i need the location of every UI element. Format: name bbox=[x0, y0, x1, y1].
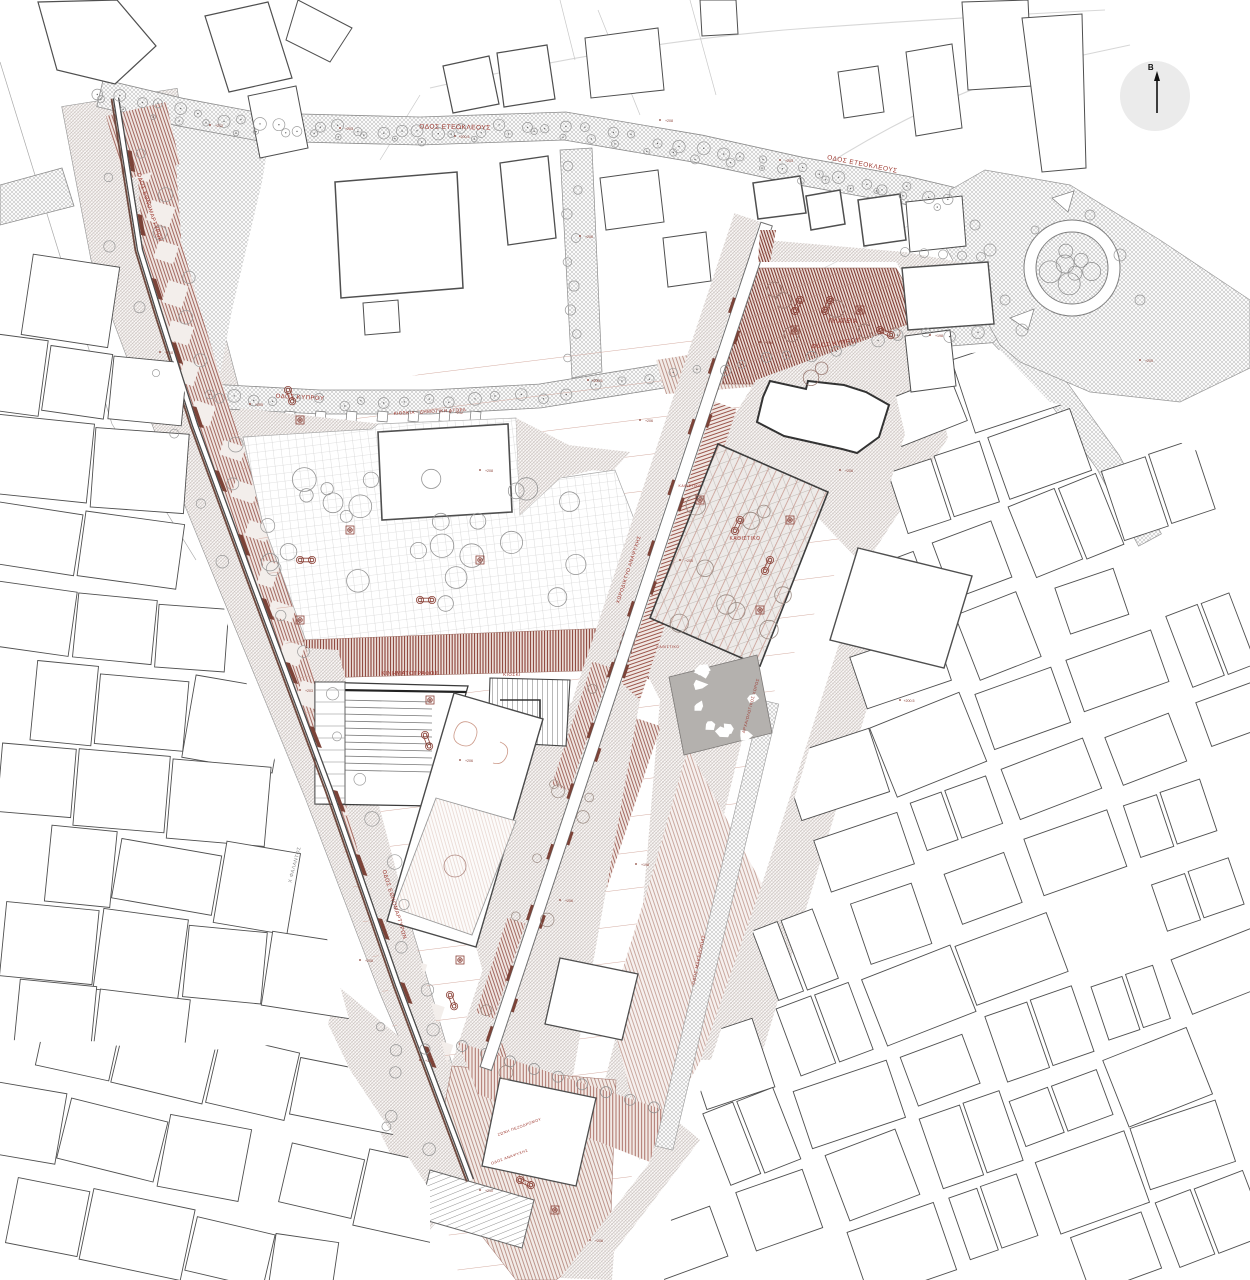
svg-text:+212: +212 bbox=[215, 124, 223, 128]
svg-text:+198: +198 bbox=[425, 1059, 433, 1063]
svg-text:+208: +208 bbox=[765, 341, 773, 345]
svg-text:+203: +203 bbox=[305, 689, 313, 693]
svg-text:B: B bbox=[1148, 63, 1154, 72]
svg-text:+200.5: +200.5 bbox=[903, 699, 914, 703]
svg-text:ΟΔΟΣ ΕΤΕΟΚΛΕΟΥΣ: ΟΔΟΣ ΕΤΕΟΚΛΕΟΥΣ bbox=[419, 123, 491, 131]
svg-text:+210: +210 bbox=[165, 351, 173, 355]
svg-text:+206: +206 bbox=[465, 759, 473, 763]
svg-text:+206: +206 bbox=[565, 899, 573, 903]
svg-text:ΠΛΑΤΕΙΑ: ΠΛΑΤΕΙΑ bbox=[829, 319, 858, 325]
svg-text:+208: +208 bbox=[665, 119, 673, 123]
svg-text:+198: +198 bbox=[641, 863, 649, 867]
svg-text:+205: +205 bbox=[1145, 359, 1153, 363]
svg-text:+206: +206 bbox=[645, 419, 653, 423]
svg-text:+198: +198 bbox=[935, 334, 943, 338]
svg-text:+200.5: +200.5 bbox=[591, 379, 602, 383]
svg-text:ΚΑΘΙΣΤΙΚΟ: ΚΑΘΙΣΤΙΚΟ bbox=[730, 536, 761, 542]
svg-text:+212: +212 bbox=[455, 411, 463, 415]
svg-text:ΚΙΝΗΜΑΤΟΓΡΑΦΟΣ: ΚΙΝΗΜΑΤΟΓΡΑΦΟΣ bbox=[381, 671, 438, 677]
svg-text:ΚΑΘΙΣΤΙΚΟ: ΚΑΘΙΣΤΙΚΟ bbox=[656, 645, 679, 649]
svg-text:+210: +210 bbox=[485, 1189, 493, 1193]
svg-text:ΚΙΟΣΚΙ: ΚΙΟΣΚΙ bbox=[503, 672, 521, 677]
svg-text:ΚΑΘΙΣΤΙΚΟ: ΚΑΘΙΣΤΙΚΟ bbox=[678, 484, 701, 488]
svg-text:+203: +203 bbox=[345, 127, 353, 131]
svg-text:+208: +208 bbox=[485, 469, 493, 473]
svg-text:+203: +203 bbox=[785, 159, 793, 163]
svg-text:+205: +205 bbox=[685, 559, 693, 563]
svg-text:+206: +206 bbox=[585, 235, 593, 239]
svg-text:+205: +205 bbox=[255, 403, 263, 407]
svg-text:+206: +206 bbox=[845, 469, 853, 473]
svg-text:+200.5: +200.5 bbox=[458, 135, 469, 139]
svg-text:+208: +208 bbox=[365, 959, 373, 963]
svg-text:+206: +206 bbox=[595, 1239, 603, 1243]
